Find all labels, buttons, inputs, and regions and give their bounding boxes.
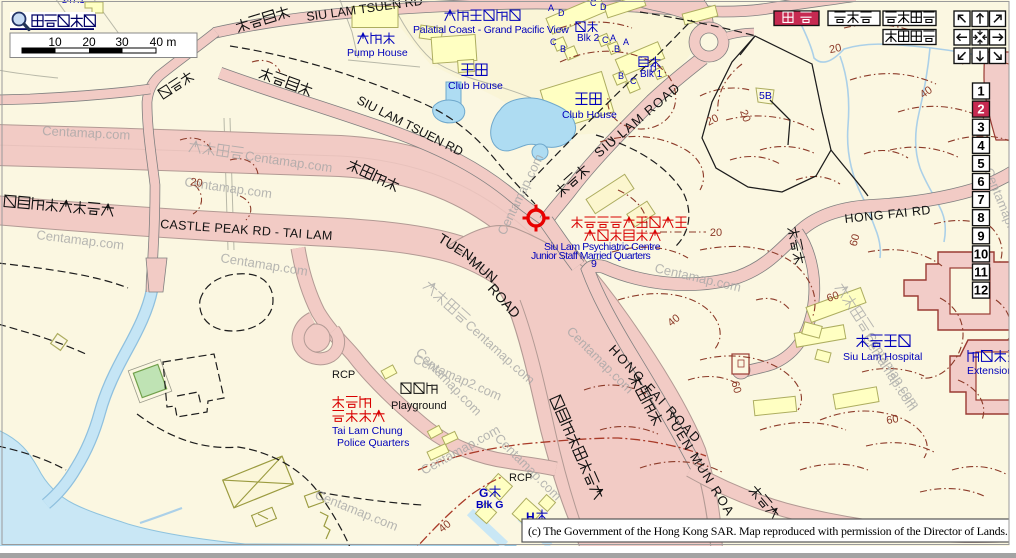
svg-text:B: B [560,44,566,54]
svg-text:Siu Lam Hospital: Siu Lam Hospital [843,351,922,363]
svg-text:Club House: Club House [562,109,617,121]
svg-text:C: C [630,76,637,86]
svg-text:B: B [614,44,620,54]
svg-text:2: 2 [977,102,984,117]
svg-text:Blk 2: Blk 2 [577,33,600,44]
svg-text:Police Quarters: Police Quarters [337,437,409,449]
svg-text:10: 10 [48,35,62,49]
svg-text:D: D [650,64,657,74]
svg-text:Palatial Coast - Grand Pacific: Palatial Coast - Grand Pacific View [413,24,569,36]
svg-text:7: 7 [977,192,984,207]
svg-text:10: 10 [974,246,988,261]
svg-text:1: 1 [977,84,984,99]
svg-text:3: 3 [977,120,984,135]
svg-text:20: 20 [710,227,722,239]
svg-text:Blk G: Blk G [476,499,503,511]
svg-text:247.1: 247.1 [62,0,85,5]
svg-text:D: D [558,8,565,18]
svg-text:60: 60 [885,413,899,427]
svg-text:5B: 5B [759,90,772,102]
svg-text:Playground: Playground [391,400,447,412]
svg-text:5: 5 [977,156,984,171]
svg-text:30: 30 [115,35,129,49]
svg-text:4: 4 [977,138,985,153]
svg-text:D: D [600,2,607,12]
svg-text:RCP: RCP [509,472,532,484]
svg-text:B: B [618,71,624,81]
svg-text:C: C [602,35,609,45]
svg-text:9: 9 [591,258,597,270]
svg-text:20: 20 [82,35,96,49]
svg-text:RCP: RCP [332,369,355,381]
svg-text:A: A [610,33,616,43]
svg-text:40 m: 40 m [150,35,177,49]
svg-text:C: C [550,37,557,47]
svg-text:6: 6 [977,174,984,189]
svg-text:20: 20 [828,42,842,56]
svg-text:Tai Lam Chung: Tai Lam Chung [332,425,403,437]
svg-text:20: 20 [190,176,204,190]
svg-text:Pump House: Pump House [347,47,408,59]
svg-text:Club House: Club House [448,80,503,92]
svg-text:12: 12 [974,283,988,298]
svg-text:A: A [623,37,629,47]
svg-text:(c) The Government of the Hong: (c) The Government of the Hong Kong SAR.… [528,524,1008,538]
svg-text:G: G [479,486,488,500]
svg-text:11: 11 [974,265,988,280]
svg-text:8: 8 [977,210,984,225]
svg-text:A: A [548,3,554,13]
svg-text:9: 9 [977,228,984,243]
